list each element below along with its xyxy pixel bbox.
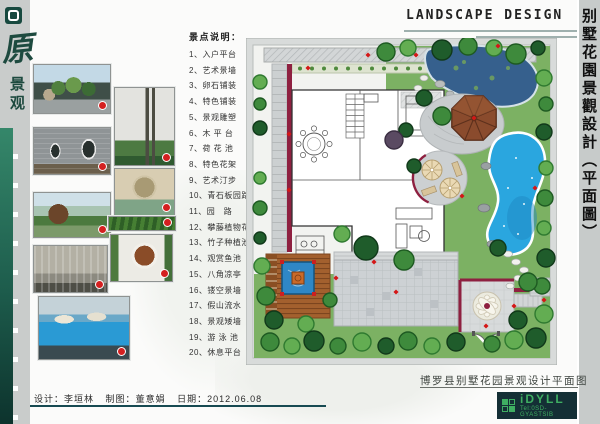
photo-number-badge — [98, 162, 107, 171]
credits-line: 设计：李垣林 制图：董意娟 日期：2012.06.08 — [34, 392, 270, 405]
presentation-board: 原 景观 景点说明： 1、入户平台 2、艺术景墙 3、卵石铺装 4、特色铺装 5… — [0, 0, 600, 424]
drawing-title: 博罗县别墅花园景观设计平面图 — [420, 373, 578, 388]
photo-swimming-pool — [38, 296, 130, 360]
designer-name: 李垣林 — [64, 394, 94, 404]
page-title-chinese-vertical: 别墅花園景觀設計（平面圖） — [579, 8, 600, 318]
photo-number-badge — [163, 218, 172, 227]
photo-number-badge — [98, 101, 107, 110]
green-accent-bar — [0, 128, 13, 424]
landscape-plan-drawing — [246, 38, 557, 365]
designer-label: 设计： — [34, 394, 64, 404]
page-title: LANDSCAPE DESIGN — [406, 8, 563, 23]
side-walkway — [272, 64, 292, 252]
photo-relief-carving — [114, 168, 175, 216]
wood-deck-lotus-pool — [266, 254, 340, 318]
photo-perforated-wall — [33, 127, 111, 175]
photo-pavilion — [33, 192, 111, 238]
photo-pot-sculpture — [110, 234, 173, 282]
photo-number-badge — [95, 280, 104, 289]
photo-number-badge — [117, 347, 126, 356]
photo-number-badge — [162, 203, 171, 212]
credits-underline — [30, 405, 326, 407]
date-value: 2012.06.08 — [207, 394, 262, 404]
ruler-ticks — [13, 130, 18, 424]
brand-logo-character: 原 — [0, 22, 35, 71]
company-logo-block: iDYLL Tel:0SD-GYASTSIB — [497, 392, 577, 419]
photo-hedge — [108, 216, 176, 231]
drawing-title-underline — [420, 387, 578, 388]
photo-number-badge — [160, 269, 169, 278]
header-rule — [404, 30, 596, 32]
photo-number-badge — [162, 153, 171, 162]
company-name: iDYLL — [520, 393, 572, 405]
photo-number-badge — [98, 225, 107, 234]
drafter-name: 董意娟 — [136, 394, 166, 404]
date-label: 日期： — [177, 394, 207, 404]
company-phone: Tel:0SD-GYASTSIB — [520, 406, 572, 418]
brand-logo-subtitle: 景观 — [7, 76, 28, 114]
grid-logo-icon — [502, 399, 515, 412]
photo-feature-trellis — [114, 87, 175, 166]
photo-art-wall — [33, 64, 111, 114]
company-seal-icon — [5, 7, 22, 24]
drafter-label: 制图： — [106, 394, 136, 404]
photo-rock-waterfall — [33, 245, 108, 293]
